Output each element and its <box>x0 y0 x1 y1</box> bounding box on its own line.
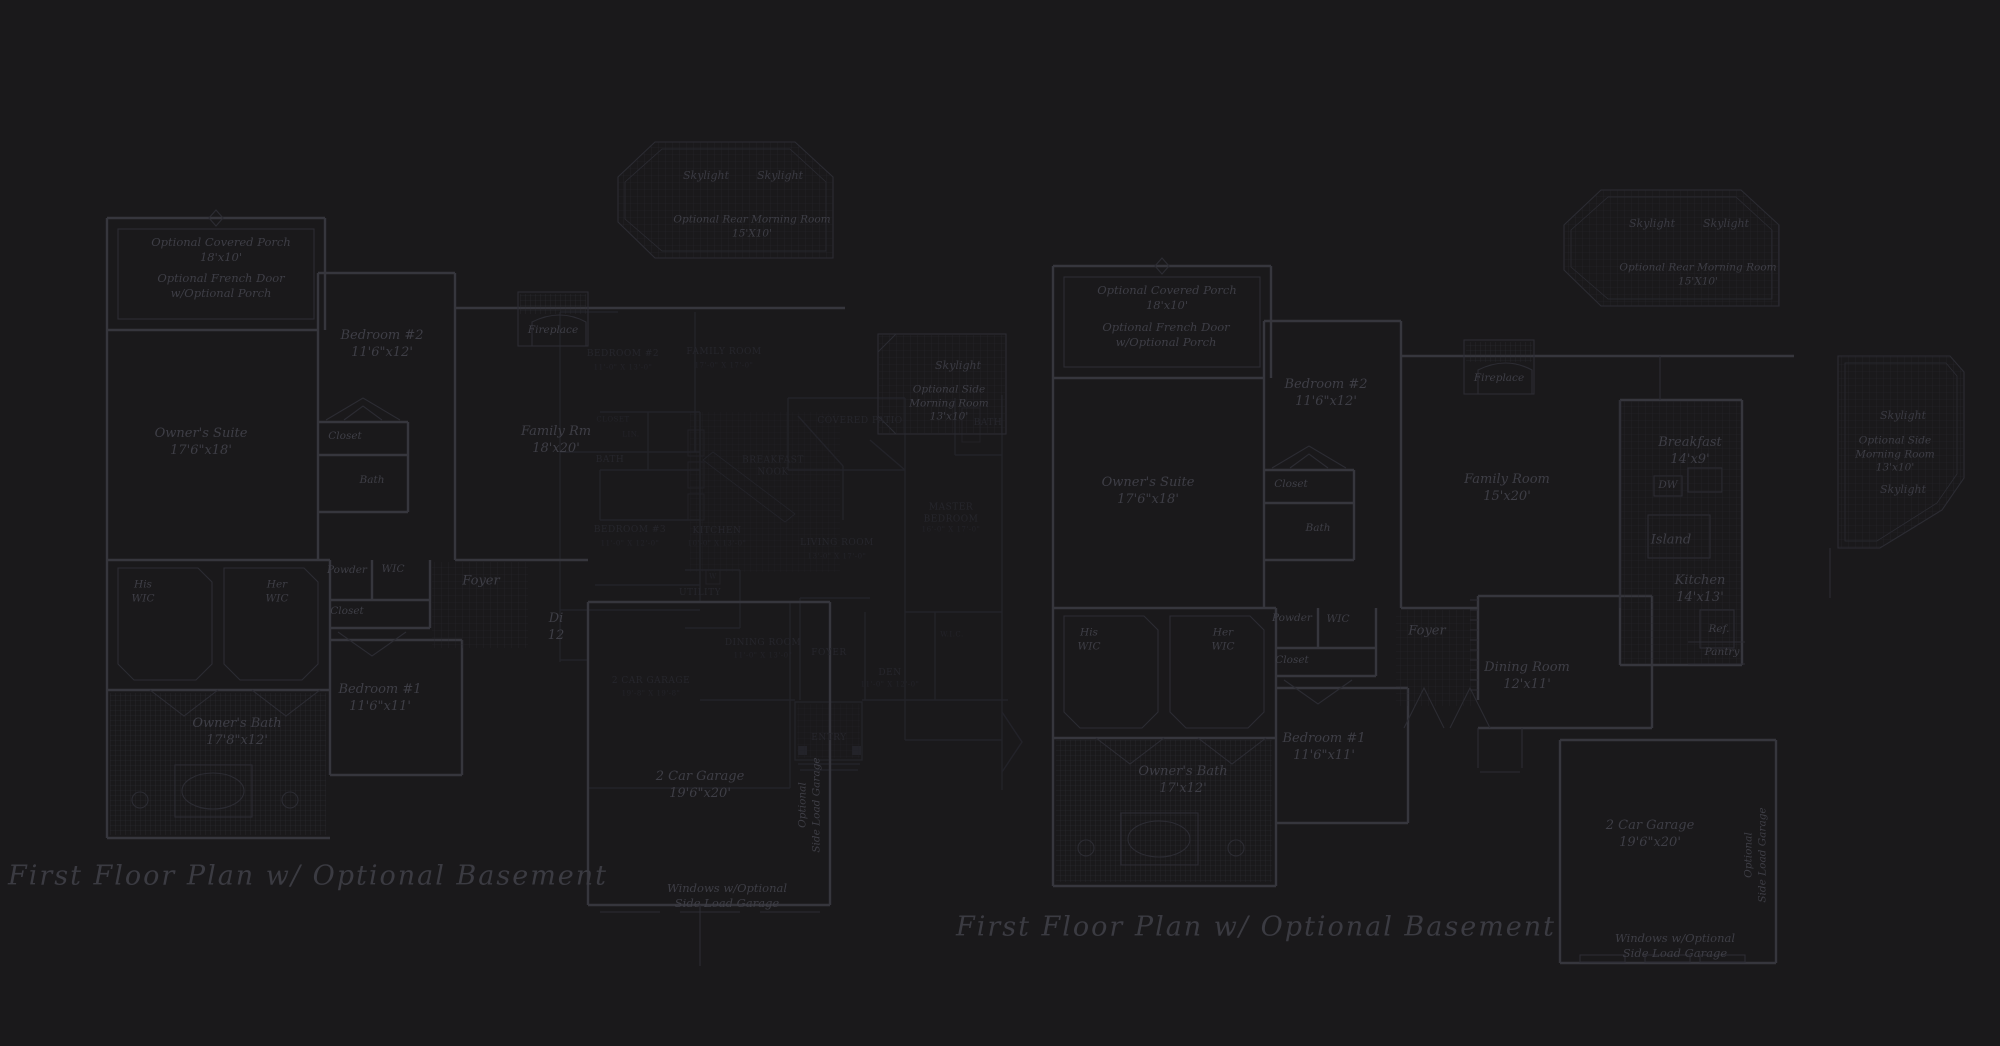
left-plan-details <box>118 142 1006 966</box>
right-fireplace-hatch <box>1466 342 1532 362</box>
left-morning-room-grid <box>618 142 833 258</box>
right-bath-tile <box>1056 740 1272 882</box>
right-side-morning-grid <box>1838 356 1964 548</box>
right-foyer-tile <box>1396 610 1476 706</box>
blueprint-canvas: Optional Covered Porch 18'x10' Optional … <box>0 0 2000 1046</box>
left-foyer-tile <box>432 562 528 648</box>
underlay-entry-tile <box>797 704 860 758</box>
right-kitchen-tile <box>1621 401 1741 664</box>
right-morning-room-grid <box>1564 190 1779 306</box>
underlay-kitchen-tile <box>690 412 840 572</box>
left-bath-tile <box>110 693 326 835</box>
floorplan-linework <box>0 0 2000 1046</box>
left-side-morning-grid <box>879 335 1005 433</box>
left-fireplace-hatch <box>520 294 586 314</box>
